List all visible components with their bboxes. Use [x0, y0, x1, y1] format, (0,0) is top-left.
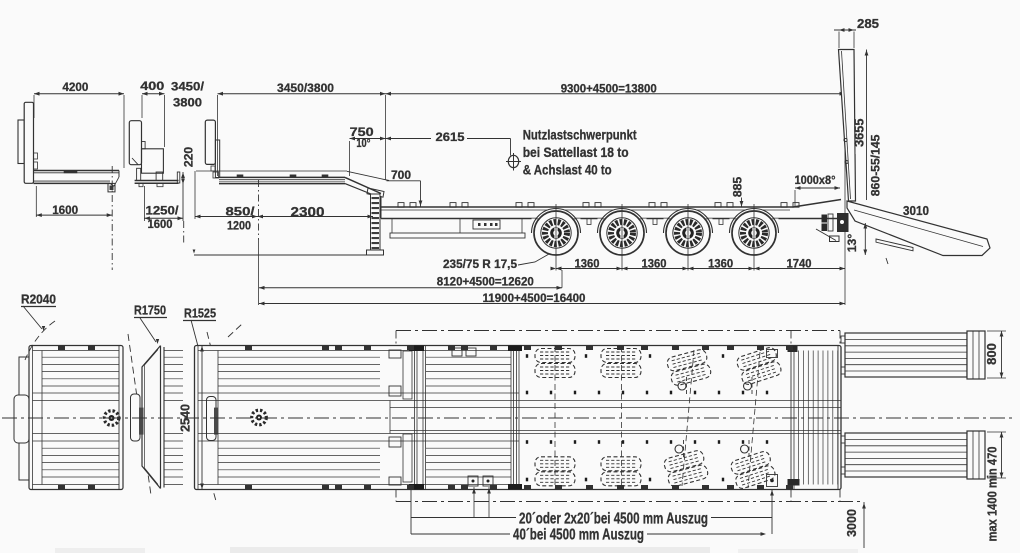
svg-text:1600: 1600	[148, 217, 173, 231]
svg-text:3655: 3655	[852, 118, 867, 146]
svg-text:1600: 1600	[52, 203, 78, 217]
svg-text:3000: 3000	[845, 509, 859, 537]
svg-text:R1750: R1750	[134, 304, 166, 318]
svg-text:750: 750	[350, 125, 374, 139]
svg-text:bei Sattellast 18 to: bei Sattellast 18 to	[523, 145, 629, 160]
svg-text:& Achslast 40 to: & Achslast 40 to	[523, 162, 612, 177]
svg-text:1360: 1360	[708, 257, 733, 271]
svg-text:11900+4500=16400: 11900+4500=16400	[483, 291, 586, 305]
svg-text:885: 885	[730, 177, 744, 198]
svg-text:700: 700	[391, 168, 411, 182]
svg-text:1200: 1200	[227, 219, 251, 233]
svg-text:860-55/145: 860-55/145	[868, 134, 882, 196]
svg-text:3450/3800: 3450/3800	[277, 81, 334, 95]
svg-text:4200: 4200	[62, 80, 88, 94]
svg-text:3450/: 3450/	[171, 80, 205, 94]
svg-text:R1525: R1525	[184, 307, 216, 321]
svg-text:1000x8°: 1000x8°	[795, 173, 836, 187]
svg-text:max 1400 min 470: max 1400 min 470	[986, 446, 1000, 541]
svg-text:2540: 2540	[179, 404, 193, 432]
svg-text:400: 400	[140, 79, 164, 93]
svg-text:850/: 850/	[226, 205, 256, 219]
svg-text:9300+4500=13800: 9300+4500=13800	[561, 81, 657, 95]
svg-text:Nutzlastschwerpunkt: Nutzlastschwerpunkt	[523, 128, 637, 143]
svg-text:285: 285	[857, 17, 879, 31]
svg-text:40´bei 4500 mm Auszug: 40´bei 4500 mm Auszug	[513, 527, 644, 544]
svg-text:1360: 1360	[575, 257, 600, 271]
svg-text:2300: 2300	[291, 205, 325, 220]
svg-text:3800: 3800	[173, 96, 202, 110]
svg-text:1250/: 1250/	[146, 204, 180, 218]
svg-text:235/75 R 17,5: 235/75 R 17,5	[443, 257, 517, 271]
svg-text:13°: 13°	[845, 234, 859, 253]
svg-text:20´oder 2x20´bei 4500 mm Auszu: 20´oder 2x20´bei 4500 mm Auszug	[519, 511, 708, 528]
svg-text:1360: 1360	[642, 257, 667, 271]
svg-text:220: 220	[182, 147, 196, 168]
svg-text:R2040: R2040	[21, 293, 56, 307]
svg-text:2615: 2615	[436, 130, 465, 144]
svg-text:800: 800	[984, 343, 999, 365]
svg-text:3010: 3010	[903, 204, 929, 218]
svg-text:8120+4500=12620: 8120+4500=12620	[437, 275, 534, 289]
svg-text:1740: 1740	[787, 257, 812, 271]
svg-text:10°: 10°	[356, 138, 370, 150]
